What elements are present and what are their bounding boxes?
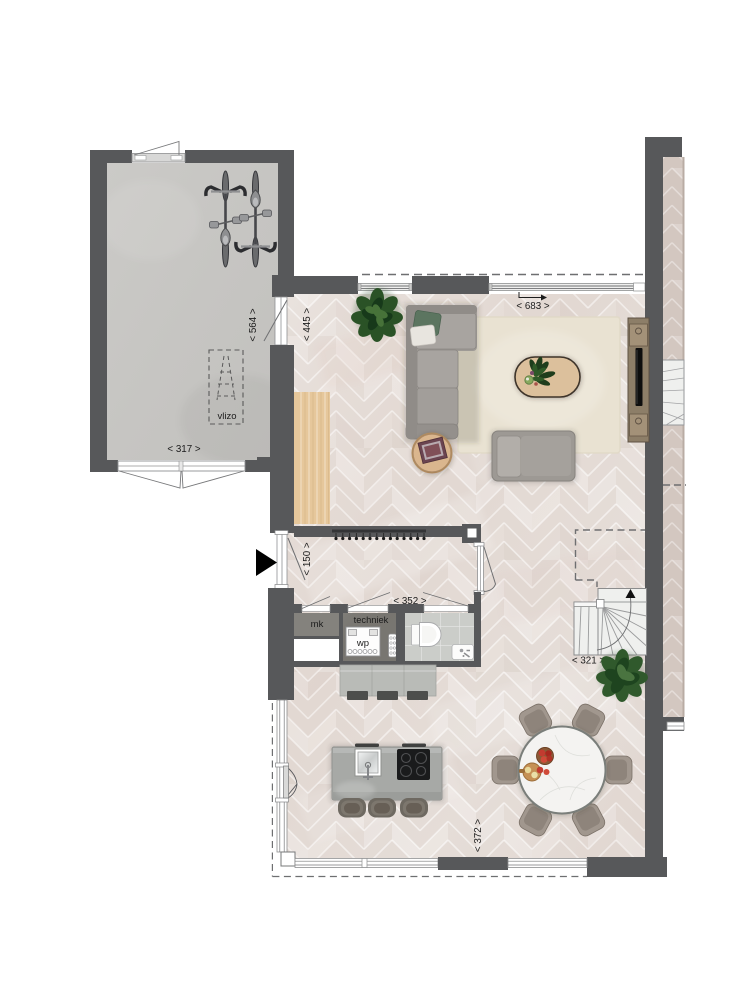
svg-text:< 372 >: < 372 >: [473, 819, 484, 853]
svg-text:wp: wp: [356, 638, 369, 649]
svg-text:mk: mk: [311, 619, 324, 630]
svg-text:< 317 >: < 317 >: [167, 444, 201, 455]
svg-text:techniek: techniek: [354, 615, 389, 625]
svg-text:vlizo: vlizo: [217, 411, 236, 422]
svg-text:< 683 >: < 683 >: [516, 301, 550, 312]
svg-text:< 445 >: < 445 >: [302, 308, 313, 342]
svg-text:< 150 >: < 150 >: [302, 542, 313, 576]
svg-text:< 564 >: < 564 >: [248, 308, 259, 342]
